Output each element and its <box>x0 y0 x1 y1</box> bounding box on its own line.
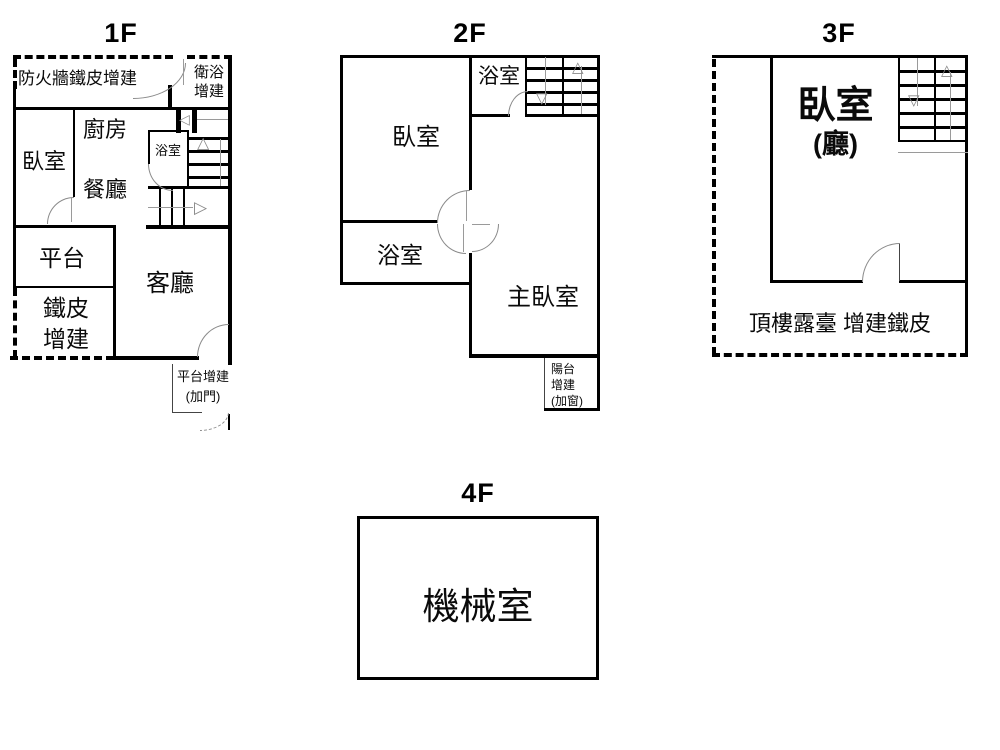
floor-title-4f: 4F <box>452 478 504 509</box>
room-label-machine-room: 機械室 <box>357 576 599 630</box>
floor-plan-canvas: 1F ◁ △ ▷ <box>0 0 1000 750</box>
floor-plan-4f: 4F 機械室 <box>0 0 1000 750</box>
